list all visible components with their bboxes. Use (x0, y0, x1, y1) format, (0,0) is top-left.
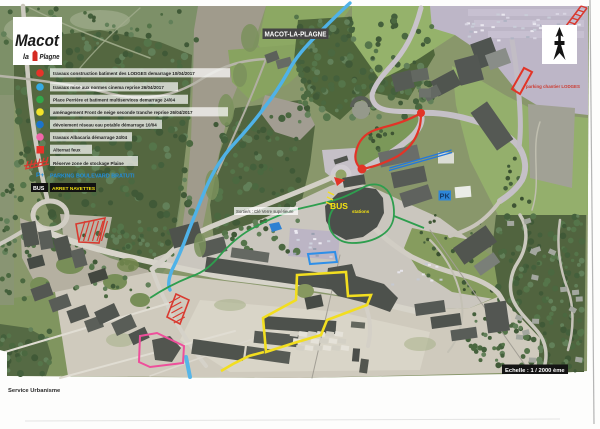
svg-text:PK: PK (440, 192, 451, 201)
svg-text:la: la (23, 54, 29, 61)
svg-text:PARKING BOULEVARD BRATUTI: PARKING BOULEVARD BRATUTI (50, 174, 135, 180)
svg-text:parking chantier LODGES: parking chantier LODGES (526, 84, 580, 89)
svg-text:dévoiement réseau eau potable: dévoiement réseau eau potable démarrage … (53, 123, 157, 128)
svg-text:aménagement Front de neige sec: aménagement Front de neige seconde tranc… (53, 110, 193, 115)
svg-text:Plagne: Plagne (40, 54, 60, 61)
svg-text:travaux construction batiment: travaux construction batiment des LODGES… (53, 71, 195, 76)
svg-text:ARRET NAVETTES: ARRET NAVETTES (52, 186, 96, 192)
svg-text:P+: P+ (36, 172, 44, 179)
svg-text:MACOT-LA-PLAGNE: MACOT-LA-PLAGNE (265, 32, 327, 39)
svg-text:BUS: BUS (33, 186, 45, 192)
svg-text:Sortie/s : Clé Verre supérieur: Sortie/s : Clé Verre supérieure (236, 209, 294, 214)
svg-text:Réserve zone de stockage Plain: Réserve zone de stockage Plaine (53, 161, 124, 166)
svg-text:BUS: BUS (330, 201, 348, 211)
svg-text:stations: stations (352, 209, 370, 214)
svg-text:travaux Albacaria démarrage 24: travaux Albacaria démarrage 24/04 (53, 135, 128, 140)
svg-text:Echelle : 1 / 2000 ème: Echelle : 1 / 2000 ème (505, 368, 565, 374)
svg-text:Place Perrière et batiment mul: Place Perrière et batiment multiservices… (53, 98, 176, 103)
svg-text:Alternat feux: Alternat feux (53, 148, 81, 153)
svg-text:Service Urbanisme: Service Urbanisme (8, 388, 61, 394)
svg-text:travaux mise aux normes cinema: travaux mise aux normes cinema reprise 2… (53, 85, 164, 90)
svg-text:Macot: Macot (15, 32, 60, 50)
